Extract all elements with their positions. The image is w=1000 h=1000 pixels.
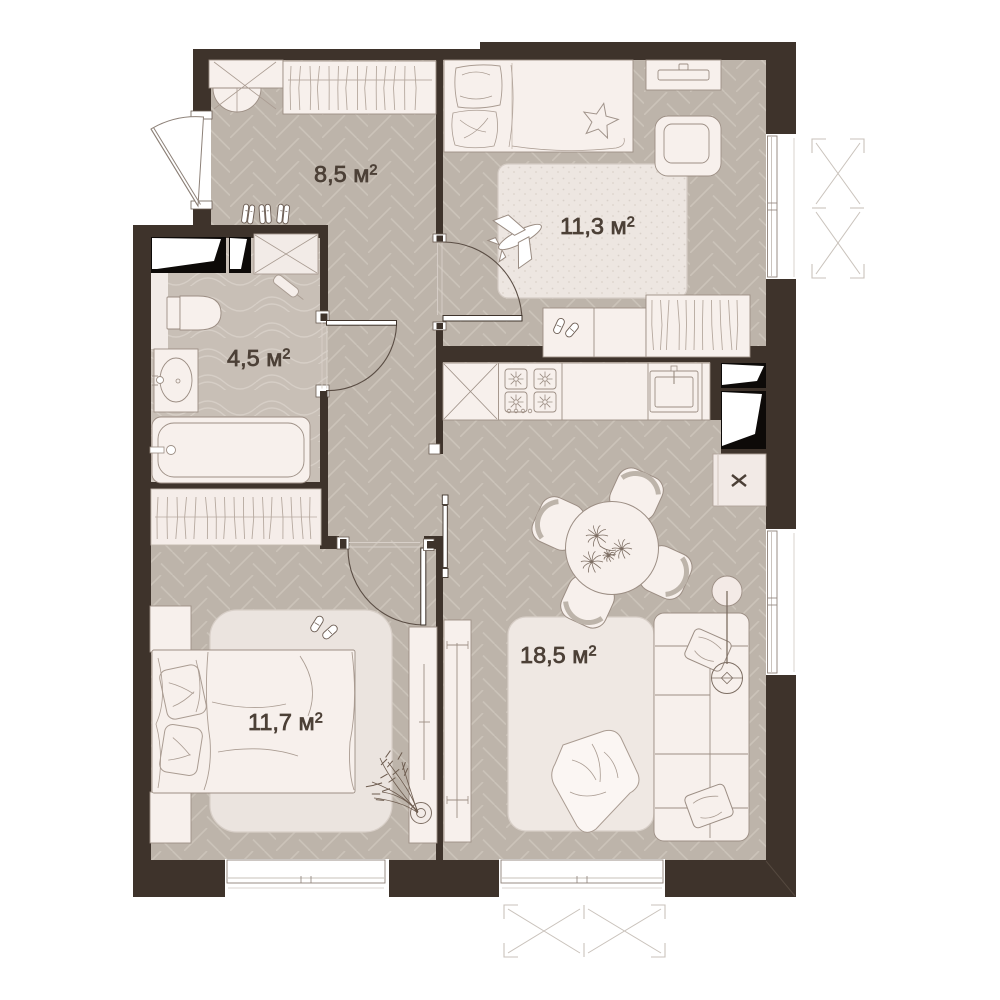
svg-text:11,3 м2: 11,3 м2 [560, 213, 635, 239]
svg-text:8,5 м2: 8,5 м2 [314, 161, 377, 187]
svg-text:11,7 м2: 11,7 м2 [248, 709, 323, 735]
svg-text:4,5 м2: 4,5 м2 [227, 345, 290, 371]
svg-text:18,5 м2: 18,5 м2 [520, 642, 597, 668]
